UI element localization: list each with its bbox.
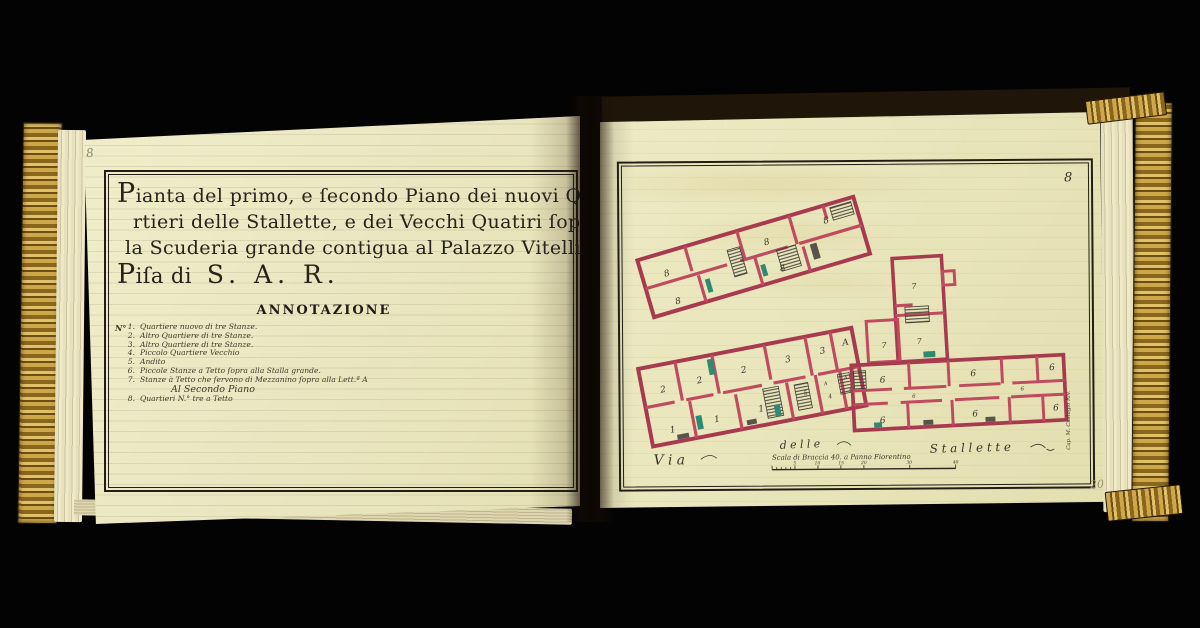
left-page-frame-inner: Pianta del primo, e ſecondo Piano dei nu… [108,174,574,488]
list-item-4: 4. Piccolo Quartiere Vecchio [119,349,439,358]
gilt-corner-bottom-right [1105,484,1184,522]
scale-tick: 10 [815,461,821,466]
annotation-list: N° 1. Quartiere nuovo di tre Stanze. 2. … [119,323,439,403]
room-label-7: 7 [911,282,917,291]
title-sar: S. A. R. [207,262,340,288]
plan-signature: Cap. M. Castagio Riv. [1066,391,1072,450]
room-label-4: 4 [827,394,833,401]
list-item-7: 7. Stanze à Tetto che ſervono di Mezzani… [119,376,439,385]
room-label-3: 3 [784,355,792,366]
gilt-cover-edge-right [1131,102,1173,522]
title-line-1: Pianta del primo, e ſecondo Piano dei nu… [117,181,569,209]
wall-slab [810,243,821,260]
annotation-n-label: N° [115,323,126,333]
room-label-8: 8 [822,215,831,226]
street-label-stallette: S t a l l e t t e [930,440,1011,456]
room-label-8: 8 [674,296,683,307]
plan-wing: 6 6 6 6 6 6 6 6 [851,355,1066,431]
room-label-6: 6 [970,369,976,379]
scale-tick: 40 [952,460,959,465]
list-item-8: 8. Quartieri N.° tre a Tetto [119,395,439,404]
right-page-frame: 8 8 8 [617,158,1095,491]
title-line-4: Piſa di S. A. R. [117,262,569,289]
room-label-7: 7 [916,337,922,346]
room-label-7: 7 [881,341,887,350]
green-door [923,351,935,358]
corridor-label-6: 6 [912,394,916,400]
green-door [695,415,703,430]
left-folio-pencil-number: 8 [85,146,94,161]
street-label-delle: d e l l e [779,437,820,452]
title-line-3: la Scuderia grande contigua al Palazzo V… [125,235,569,261]
photo-stage: 8 Pianta del primo, e ſecondo Piano dei … [0,0,1200,628]
title-line4-prefix: Piſa di [117,262,192,289]
street-label: V i a d e l l e S t a l l e t t e [653,436,1054,469]
scale-tick: 30 [906,461,912,466]
room-label-6: 6 [1053,403,1059,413]
right-folio-number: 8 [1064,170,1072,185]
stairs [854,371,867,389]
page-title: Pianta del primo, e ſecondo Piano dei nu… [117,181,569,289]
room-label-3: 3 [819,346,827,357]
plan-upper-main: 8 8 8 8 8 [637,197,870,317]
scale-tick: 5 [793,462,796,467]
room-label-6: 6 [880,375,886,385]
right-page-frame-inner: 8 8 8 [621,162,1091,487]
room-label-2: 2 [695,376,704,387]
green-door [705,278,714,293]
plan-annex: 7 7 7 [862,255,959,364]
room-label-6: 6 [972,409,978,419]
room-label-8: 8 [663,269,672,280]
stairs [905,306,930,323]
right-page: 8 8 8 [598,106,1108,510]
room-label-2: 2 [658,385,667,396]
wall-slab [985,416,995,421]
room-label-1: 1 [758,404,765,415]
left-page-frame: Pianta del primo, e ſecondo Piano dei nu… [104,170,578,492]
plan-lower-left: 2 2 2 3 3 A 1 1 1 5 4 [638,328,866,447]
wall-slab [747,419,758,426]
room-label-1: 1 [713,415,720,426]
mezzanine-label-A: A [823,381,829,388]
page-stack-left [54,130,86,522]
room-label-6: 6 [1049,363,1055,373]
scale-tick: 15 [838,461,844,466]
floor-plan-drawing: 8 8 8 [622,163,1090,488]
room-label-6: 6 [880,416,886,426]
street-label-via: V i a [654,452,686,468]
page-stack-right [1101,112,1136,512]
room-label-8: 8 [763,237,772,248]
room-label-A: A [840,338,849,349]
book-gutter [566,96,614,522]
scale-tick: 20 [860,461,867,466]
corridor-label-6: 6 [1020,386,1024,392]
room-label-2: 2 [739,365,748,376]
annotation-heading: ANNOTAZIONE [229,303,419,318]
wall-slab [923,420,933,425]
title-line-2: rtieri delle Stallette, e dei Vecchi Qua… [133,209,569,235]
room-label-1: 1 [669,425,676,436]
left-page: 8 Pianta del primo, e ſecondo Piano dei … [84,114,580,524]
